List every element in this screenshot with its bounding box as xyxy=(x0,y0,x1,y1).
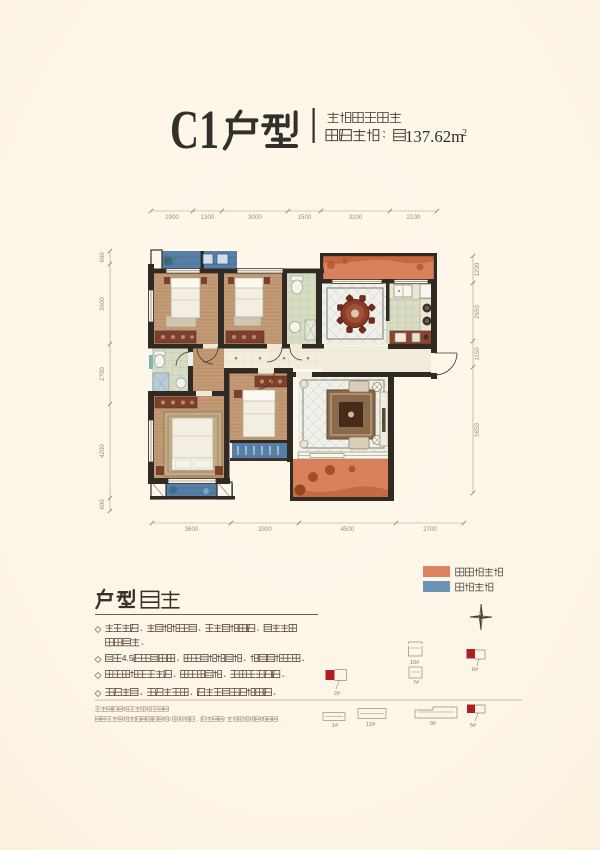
svg-text:600: 600 xyxy=(99,252,106,263)
svg-text:600: 600 xyxy=(99,499,106,510)
svg-text:2700: 2700 xyxy=(99,367,106,381)
svg-text:4500: 4500 xyxy=(341,526,355,533)
svg-text:C1: C1 xyxy=(170,99,219,160)
svg-text:12#: 12# xyxy=(366,722,376,728)
svg-text:3600: 3600 xyxy=(99,297,106,311)
svg-text:3100: 3100 xyxy=(349,214,363,221)
svg-text:10#: 10# xyxy=(410,660,420,666)
svg-text:5#: 5# xyxy=(470,723,477,729)
svg-text:1300: 1300 xyxy=(201,214,215,221)
svg-text:1500: 1500 xyxy=(298,214,312,221)
svg-text:5650: 5650 xyxy=(474,423,481,437)
svg-text:3600: 3600 xyxy=(185,526,199,533)
svg-text:3000: 3000 xyxy=(248,214,262,221)
svg-text:2#: 2# xyxy=(334,691,341,697)
svg-text:1900: 1900 xyxy=(165,214,179,221)
svg-text:4200: 4200 xyxy=(99,444,106,458)
svg-text:2650: 2650 xyxy=(474,305,481,319)
svg-text:2100: 2100 xyxy=(407,214,421,221)
svg-text:4.5: 4.5 xyxy=(122,653,134,663)
svg-text:6#: 6# xyxy=(472,667,479,673)
svg-text:1#: 1# xyxy=(332,723,339,729)
svg-text:2700: 2700 xyxy=(423,526,437,533)
svg-text:1200: 1200 xyxy=(474,262,481,276)
svg-text:7#: 7# xyxy=(413,680,420,686)
svg-text:1150: 1150 xyxy=(474,347,481,361)
svg-text:2: 2 xyxy=(462,128,467,139)
svg-text:9#: 9# xyxy=(430,721,437,727)
svg-text:137.62m: 137.62m xyxy=(405,127,464,146)
svg-text:3300: 3300 xyxy=(258,526,272,533)
